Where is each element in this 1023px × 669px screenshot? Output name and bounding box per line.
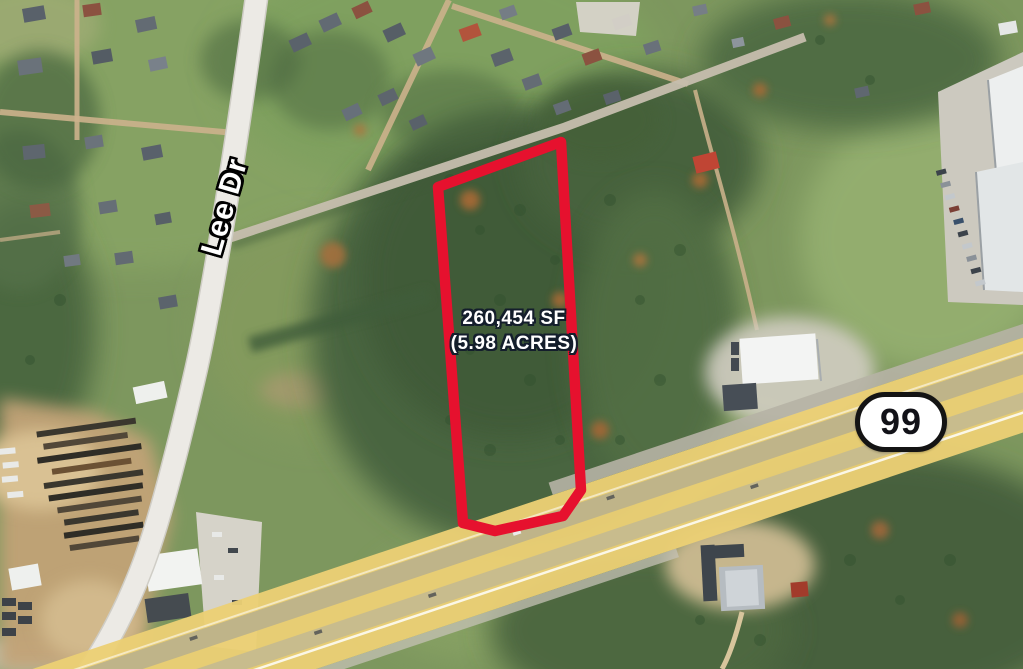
- highway-99-label: 99: [880, 401, 922, 443]
- parcel-area-sf: 260,454 SF: [451, 306, 578, 331]
- parcel-area-acres: (5.98 ACRES): [451, 331, 578, 356]
- aerial-map: Lee Dr 260,454 SF (5.98 ACRES) 99: [0, 0, 1023, 669]
- parcel-area-label: 260,454 SF (5.98 ACRES): [451, 306, 578, 356]
- highway-99-shield: 99: [855, 392, 947, 452]
